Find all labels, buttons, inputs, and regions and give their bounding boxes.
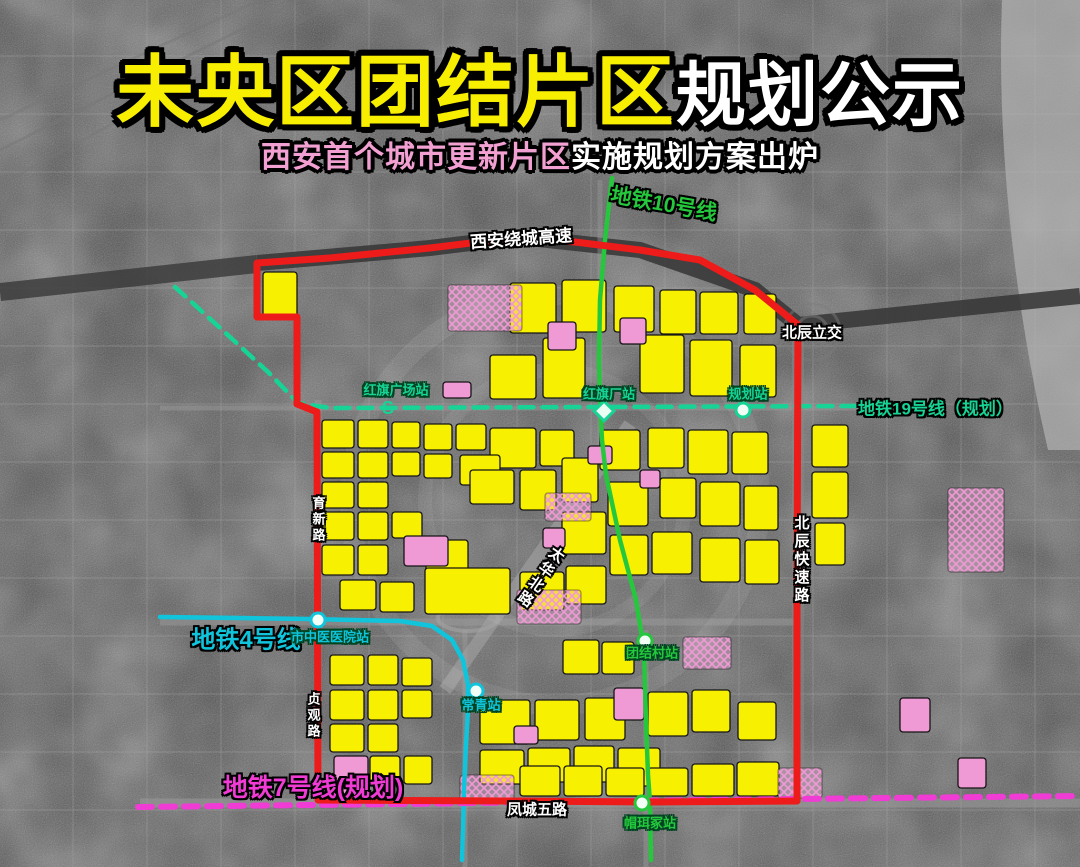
parcel-y: [368, 655, 398, 685]
parcel-p: [588, 446, 612, 464]
parcel-y: [688, 430, 728, 474]
parcel-y: [812, 425, 848, 467]
parcel-y: [690, 340, 732, 396]
parcel-y: [520, 766, 560, 796]
parcel-y: [322, 420, 354, 448]
parcel-y: [370, 756, 400, 786]
parcel-y: [368, 690, 398, 720]
parcel-y: [738, 702, 776, 740]
parcel-y: [606, 768, 644, 796]
parcel-y: [322, 452, 354, 478]
parcel-y: [322, 512, 354, 540]
parcel-p: [620, 318, 646, 344]
parcel-y: [602, 642, 634, 674]
parcel-y: [402, 658, 432, 686]
parcel-y: [330, 724, 364, 752]
parcels-layer: [263, 272, 1004, 801]
parcel-y: [648, 692, 688, 736]
parcel-y: [732, 432, 768, 474]
parcel-y: [564, 766, 602, 796]
parcel-y: [392, 422, 420, 448]
parcel-y: [660, 290, 696, 334]
parcel-p: [614, 688, 644, 720]
title-district-part: 未央区团结片区: [116, 48, 676, 136]
parcel-x: [545, 493, 591, 521]
metro-logo-icon: S: [382, 398, 394, 418]
parcel-y: [470, 470, 514, 504]
parcel-y: [660, 478, 696, 518]
parcel-x: [683, 637, 731, 669]
parcel-y: [392, 512, 422, 538]
parcel-y: [563, 640, 599, 674]
ring-expressway-west: [0, 264, 257, 292]
parcel-y: [490, 355, 536, 399]
parcel-y: [358, 482, 388, 508]
parcel-p: [334, 756, 368, 798]
parcel-y: [424, 454, 452, 478]
poster-subtitle: 西安首个城市更新片区实施规划方案出炉: [0, 132, 1080, 176]
parcel-y: [322, 482, 354, 508]
parcel-y: [812, 472, 848, 518]
parcel-y: [745, 540, 779, 584]
parcel-y: [652, 532, 692, 574]
parcel-y: [700, 292, 738, 334]
poster-title: 未央区团结片区规划公示: [0, 30, 1080, 142]
parcel-y: [815, 523, 845, 565]
station-marker: [638, 634, 652, 648]
parcel-y: [358, 545, 388, 575]
parcel-p: [443, 382, 471, 398]
parcel-y: [358, 420, 388, 448]
parcel-y: [740, 345, 776, 397]
parcel-y: [358, 452, 388, 478]
parcel-y: [648, 428, 684, 468]
parcel-p: [514, 726, 538, 744]
parcel-y: [402, 690, 432, 718]
parcel-y: [535, 700, 579, 740]
parcel-x: [460, 775, 514, 801]
parcel-y: [744, 486, 778, 530]
parcel-x: [948, 488, 1004, 572]
parcel-y: [263, 272, 297, 318]
parcel-p: [543, 528, 565, 548]
parcel-x: [448, 285, 522, 331]
subtitle-highlight-part: 西安首个城市更新片区: [261, 141, 571, 174]
station-marker-diamond: [594, 401, 614, 421]
station-marker: [311, 613, 325, 627]
parcel-y: [340, 580, 376, 610]
station-marker: [469, 684, 483, 698]
parcel-y: [424, 424, 452, 450]
subtitle-rest-part: 实施规划方案出炉: [571, 141, 819, 174]
parcel-y: [692, 690, 730, 732]
parcel-p: [900, 698, 930, 732]
parcel-y: [700, 482, 740, 526]
parcel-y: [358, 512, 388, 540]
parcel-x: [517, 590, 581, 624]
parcel-y: [737, 762, 779, 796]
parcel-p: [404, 536, 448, 566]
parcel-y: [330, 690, 364, 720]
station-marker: [635, 796, 649, 810]
parcel-y: [322, 545, 354, 575]
parcel-y: [380, 582, 414, 612]
station-marker: [736, 403, 750, 417]
title-plan-part: 规划公示: [676, 56, 964, 134]
parcel-y: [425, 568, 510, 614]
parcel-p: [640, 470, 660, 488]
parcel-y: [330, 655, 364, 685]
parcel-y: [700, 538, 740, 582]
planning-map-poster: S 地铁10号线 地铁19号线（规划） 地铁4号线 地铁7号线(规划) 西安绕城…: [0, 0, 1080, 867]
parcel-y: [456, 424, 486, 450]
parcel-y: [640, 335, 684, 393]
parcel-p: [958, 758, 986, 788]
parcel-y: [692, 764, 734, 796]
parcel-y: [404, 756, 432, 784]
parcel-y: [648, 768, 688, 796]
parcel-p: [548, 322, 576, 350]
parcel-y: [368, 724, 398, 752]
parcel-y: [392, 452, 420, 476]
